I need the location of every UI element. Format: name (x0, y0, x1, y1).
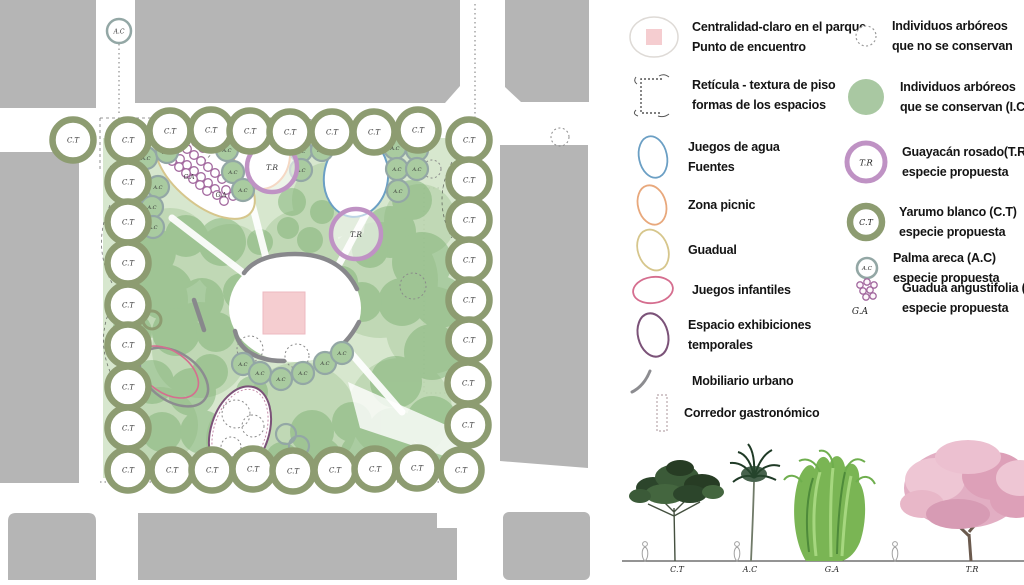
legend-label: Zona picnic (688, 195, 755, 215)
svg-text:C.T: C.T (287, 468, 300, 476)
legend-label: Centralidad-claro en el parque (692, 17, 866, 37)
legend-label: que no se conservan (892, 36, 1013, 56)
legend-label: que se conservan (I.C) (900, 97, 1024, 117)
legend-row-centrality: Centralidad-claro en el parquePunto de e… (628, 14, 866, 60)
yarumo-circle: C.T (108, 285, 149, 326)
building-block (503, 512, 590, 580)
legend-label: Guadua angustifolia (G.A) (902, 278, 1024, 298)
svg-text:A.C: A.C (227, 170, 237, 176)
building-block (0, 0, 96, 108)
site-plan-svg: G.AG.AG.AG.A A.CA.CA.CA.CA.CA.CA.CA.CA.C… (0, 0, 620, 580)
yarumo-circle: C.T (449, 160, 490, 201)
centrality-icon (628, 14, 680, 60)
building-block (505, 0, 589, 102)
svg-text:C.T: C.T (164, 128, 177, 136)
elevation-labels: C.T A.C G.A T.R (670, 565, 978, 574)
human-figure (892, 542, 898, 561)
ct-ring-icon: C.T (845, 201, 887, 243)
svg-text:A.C: A.C (392, 189, 402, 195)
palma-areca-circle: A.C (406, 158, 428, 180)
svg-text:C.T: C.T (326, 129, 339, 137)
legend-row-guadual: Guadual (632, 226, 737, 274)
svg-text:T.R: T.R (350, 230, 362, 239)
elevation-label-ga: G.A (825, 565, 840, 574)
svg-text:C.T: C.T (244, 128, 257, 136)
yarumo-circle: C.T (449, 320, 490, 361)
svg-text:C.T: C.T (122, 137, 135, 145)
guadua-circle (204, 179, 213, 188)
exhibitions-icon (632, 310, 676, 360)
svg-text:C.T: C.T (329, 467, 342, 475)
guadual-icon (632, 226, 676, 274)
building-block (135, 0, 460, 103)
legend-row-grid-texture: Retícula - textura de pisoformas de los … (628, 70, 835, 120)
yarumo-circle: C.T (108, 243, 149, 284)
site-plan: G.AG.AG.AG.A A.CA.CA.CA.CA.CA.CA.CA.CA.C… (0, 0, 620, 580)
yarumo-circle: C.T (449, 120, 490, 161)
tr-symbol: T.R (859, 159, 873, 169)
guadua-circle (175, 163, 184, 172)
svg-text:C.T: C.T (463, 337, 476, 345)
legend-label: Punto de encuentro (692, 37, 866, 57)
svg-text:C.T: C.T (411, 465, 424, 473)
human-scale-figures (642, 542, 898, 561)
yarumo-circle: C.T (441, 450, 482, 491)
yarumo-circle: C.T (53, 120, 94, 161)
guadua-circle (197, 157, 206, 166)
legend-label: Espacio exhibiciones (688, 315, 811, 335)
guadua-circle (190, 151, 199, 160)
yarumo-circle: C.T (355, 449, 396, 490)
guadua-label: G.A (184, 174, 195, 181)
svg-text:C.T: C.T (122, 219, 135, 227)
legend-row-gastronomic-corridor: Corredor gastronómico (654, 392, 819, 434)
playground-icon (628, 268, 680, 312)
grid-texture-icon (628, 70, 680, 120)
guadua-circle (196, 181, 205, 190)
yarumo-circle: C.T (108, 450, 149, 491)
legend-row-picnic: Zona picnic (632, 182, 755, 228)
legend-label: Juegos de agua (688, 137, 780, 157)
tree-conserved-icon (844, 75, 888, 119)
palma-areca-circle: A.C (249, 362, 271, 384)
guayacan-circle: T.R (331, 209, 381, 259)
yarumo-circle: C.T (449, 240, 490, 281)
legend-row-guayacan: T.R Guayacán rosado(T.R)especie propuest… (842, 138, 1024, 186)
svg-text:C.T: C.T (205, 127, 218, 135)
svg-text:A.C: A.C (152, 185, 162, 191)
palma-areca-circle: A.C (331, 342, 353, 364)
svg-text:C.T: C.T (463, 177, 476, 185)
legend-label: Guayacán rosado(T.R) (902, 142, 1024, 162)
ga-cluster-icon: G.A (848, 275, 890, 321)
palma-areca-circle: A.C (270, 368, 292, 390)
svg-text:T.R: T.R (266, 163, 278, 172)
yarumo-circle: C.T (449, 200, 490, 241)
svg-text:C.T: C.T (463, 137, 476, 145)
guadua-illustration (784, 451, 875, 561)
yarumo-circle: C.T (315, 450, 356, 491)
svg-text:C.T: C.T (463, 297, 476, 305)
yarumo-circle: C.T (273, 451, 314, 492)
yarumo-circle: C.T (108, 202, 149, 243)
legend-label: especie propuesta (902, 298, 1024, 318)
legend-label: Juegos infantiles (692, 280, 791, 300)
yarumo-circle: C.T (191, 110, 232, 151)
svg-text:A.C: A.C (391, 167, 401, 173)
legend-label: Fuentes (688, 157, 780, 177)
yarumo-circle: C.T (397, 448, 438, 489)
legend-row-tree-conserved: Individuos arbóreosque se conservan (I.C… (844, 75, 1024, 119)
tr-ring-icon: T.R (842, 138, 890, 186)
ct-symbol: C.T (859, 218, 873, 227)
elevation-label-tr: T.R (966, 565, 979, 574)
yarumo-circle: C.T (108, 162, 149, 203)
svg-text:C.T: C.T (166, 467, 179, 475)
central-plaza-square (263, 292, 305, 334)
ga-symbol: G.A (852, 307, 869, 317)
svg-text:C.T: C.T (455, 467, 468, 475)
tree-not-conserved (551, 128, 569, 146)
legend: Centralidad-claro en el parquePunto de e… (620, 0, 1024, 430)
building-block (0, 152, 79, 483)
water-games-icon (632, 132, 676, 182)
svg-text:C.T: C.T (122, 342, 135, 350)
svg-text:C.T: C.T (122, 425, 135, 433)
building-block (8, 513, 96, 580)
elevation-label-ct: C.T (670, 565, 684, 574)
human-figure (642, 542, 648, 561)
legend-row-tree-not-conserved: Individuos arbóreosque no se conservan (852, 16, 1013, 56)
legend-row-exhibitions: Espacio exhibicionestemporales (632, 310, 811, 360)
yarumo-circle: C.T (152, 450, 193, 491)
yarumo-circle: C.T (398, 110, 439, 151)
yarumo-circle: C.T (108, 408, 149, 449)
yarumo-circle: C.T (192, 450, 233, 491)
park-design-diagram: { "colors": { "building": "#b5b5b5", "pa… (0, 0, 1024, 580)
svg-text:A.C: A.C (254, 371, 264, 377)
legend-row-water-games: Juegos de aguaFuentes (632, 132, 780, 182)
svg-text:A.C: A.C (237, 362, 247, 368)
legend-label: Mobiliario urbano (692, 371, 793, 391)
svg-text:C.T: C.T (122, 467, 135, 475)
guayacan-rosado-illustration (900, 440, 1024, 561)
ac-symbol: A.C (861, 266, 873, 272)
yarumo-circle: C.T (448, 405, 489, 446)
guadua-circle (204, 163, 213, 172)
svg-text:C.T: C.T (368, 129, 381, 137)
svg-text:C.T: C.T (412, 127, 425, 135)
tree-not-conserved-icon (852, 22, 880, 50)
svg-text:C.T: C.T (284, 129, 297, 137)
building-block (500, 145, 588, 468)
svg-text:A.C: A.C (411, 167, 421, 173)
guadua-circle (211, 169, 220, 178)
yarumo-circle: C.T (312, 112, 353, 153)
svg-text:C.T: C.T (462, 422, 475, 430)
svg-text:A.C: A.C (336, 351, 346, 357)
guadua-circle (183, 161, 192, 170)
palma-areca-circle: A.C (387, 180, 409, 202)
gastronomic-corridor-icon (654, 392, 672, 434)
legend-label: Individuos arbóreos (900, 77, 1024, 97)
legend-label: Retícula - textura de piso (692, 75, 835, 95)
legend-label: Palma areca (A.C) (893, 248, 999, 268)
svg-text:C.T: C.T (122, 260, 135, 268)
svg-text:C.T: C.T (369, 466, 382, 474)
yarumo-circle: C.T (270, 112, 311, 153)
guadua-label: G.A (216, 192, 227, 199)
svg-text:C.T: C.T (122, 302, 135, 310)
svg-text:A.C: A.C (297, 371, 307, 377)
legend-label: formas de los espacios (692, 95, 835, 115)
picnic-zone-icon (632, 182, 676, 228)
legend-label: Corredor gastronómico (684, 403, 819, 423)
human-figure (734, 542, 740, 561)
svg-text:C.T: C.T (67, 137, 80, 145)
legend-label: Guadual (688, 240, 737, 260)
svg-text:C.T: C.T (463, 257, 476, 265)
guadua-circle (203, 187, 212, 196)
yarumo-circle: C.T (108, 367, 149, 408)
building-block (138, 513, 457, 580)
svg-text:C.T: C.T (247, 466, 260, 474)
palma-areca-circle: A.C (292, 362, 314, 384)
legend-label: Individuos arbóreos (892, 16, 1013, 36)
elevation-label-ac: A.C (742, 565, 757, 574)
palma-areca-circle: A.C (386, 158, 408, 180)
species-elevation: C.T A.C G.A T.R (620, 430, 1024, 580)
legend-row-playground: Juegos infantiles (628, 268, 791, 312)
svg-text:C.T: C.T (206, 467, 219, 475)
legend-label: especie propuesta (899, 222, 1017, 242)
svg-text:C.T: C.T (122, 179, 135, 187)
yarumo-circle: C.T (108, 325, 149, 366)
legend-label: Yarumo blanco (C.T) (899, 202, 1017, 222)
svg-text:A.C: A.C (319, 361, 329, 367)
palma-areca-circle: A.C (107, 19, 131, 43)
svg-text:C.T: C.T (462, 380, 475, 388)
yarumo-circle: C.T (449, 280, 490, 321)
svg-text:C.T: C.T (122, 384, 135, 392)
svg-text:C.T: C.T (463, 217, 476, 225)
legend-label: especie propuesta (902, 162, 1024, 182)
yarumo-circle: C.T (354, 112, 395, 153)
yarumo-circle: C.T (230, 111, 271, 152)
legend-row-yarumo: C.T Yarumo blanco (C.T)especie propuesta (845, 201, 1017, 243)
yarumo-circle: C.T (448, 363, 489, 404)
legend-row-guadua-angustifolia: G.A Guadua angustifolia (G.A)especie pro… (848, 275, 1024, 321)
yarumo-circle: C.T (150, 111, 191, 152)
legend-label: temporales (688, 335, 811, 355)
species-elevation-svg: C.T A.C G.A T.R (620, 430, 1024, 580)
guadua-circle (197, 173, 206, 182)
svg-text:A.C: A.C (275, 377, 285, 383)
yarumo-circle: C.T (233, 449, 274, 490)
svg-text:A.C: A.C (113, 28, 125, 35)
yarumo-circle: C.T (108, 120, 149, 161)
svg-text:A.C: A.C (237, 188, 247, 194)
